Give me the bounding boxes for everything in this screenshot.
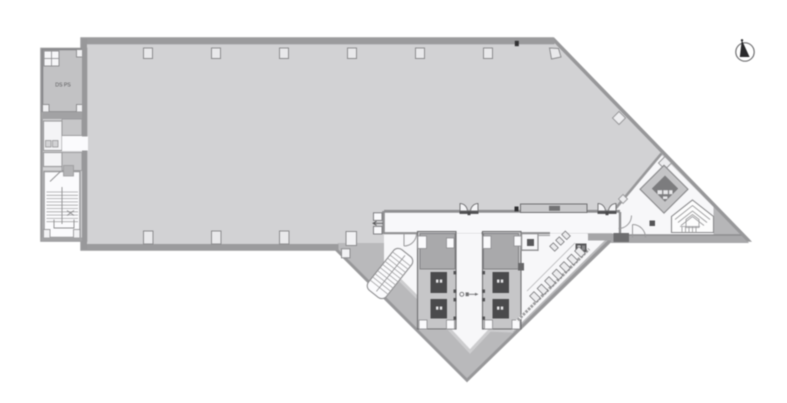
- svg-text:DS PS: DS PS: [55, 83, 71, 89]
